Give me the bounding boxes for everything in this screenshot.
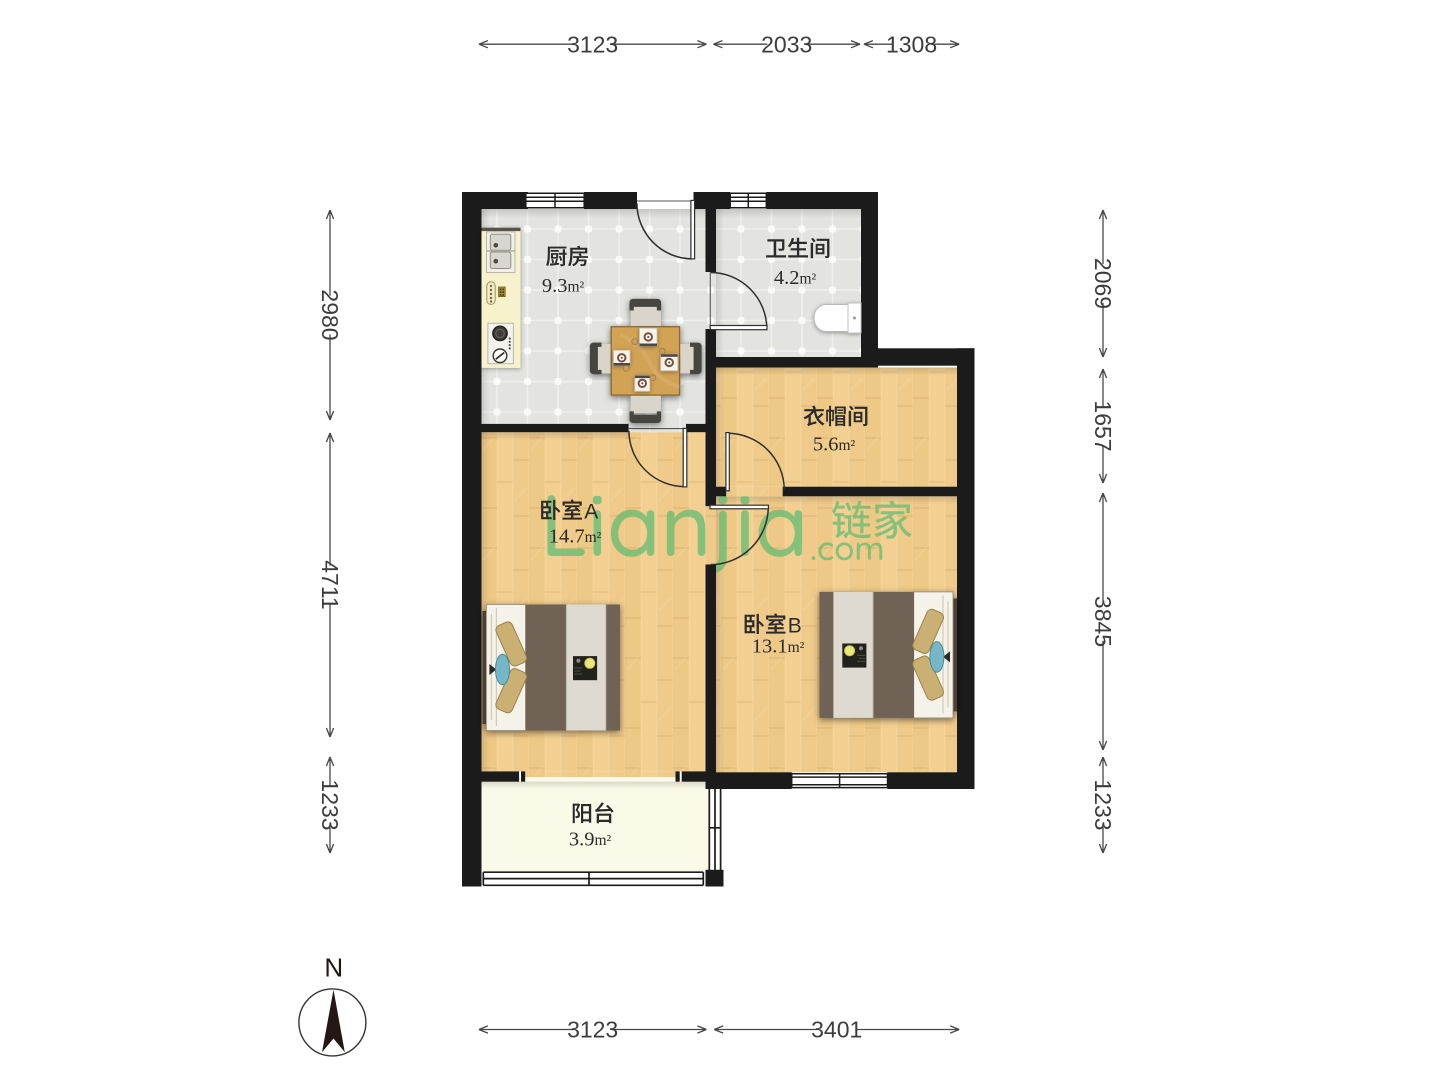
svg-text:1657: 1657	[1090, 400, 1116, 451]
svg-text:N: N	[324, 953, 343, 983]
svg-text:1308: 1308	[886, 31, 937, 57]
svg-text:1233: 1233	[317, 779, 343, 830]
svg-text:3.9m²: 3.9m²	[569, 829, 612, 851]
svg-text:4.2m²: 4.2m²	[774, 267, 817, 289]
svg-text:A: A	[584, 500, 598, 523]
svg-text:14.7m²: 14.7m²	[549, 526, 602, 548]
svg-text:1233: 1233	[1090, 779, 1116, 830]
svg-text:4711: 4711	[317, 560, 343, 609]
svg-text:3123: 3123	[567, 1017, 618, 1043]
svg-text:13.1m²: 13.1m²	[752, 636, 805, 658]
svg-text:5.6m²: 5.6m²	[813, 434, 856, 456]
svg-text:9.3m²: 9.3m²	[542, 275, 585, 297]
svg-text:2980: 2980	[317, 289, 343, 340]
svg-text:3401: 3401	[811, 1017, 862, 1043]
svg-text:B: B	[788, 614, 802, 637]
svg-text:3845: 3845	[1090, 596, 1116, 647]
svg-text:2069: 2069	[1090, 258, 1116, 309]
svg-text:2033: 2033	[761, 31, 812, 57]
svg-text:3123: 3123	[567, 31, 618, 57]
